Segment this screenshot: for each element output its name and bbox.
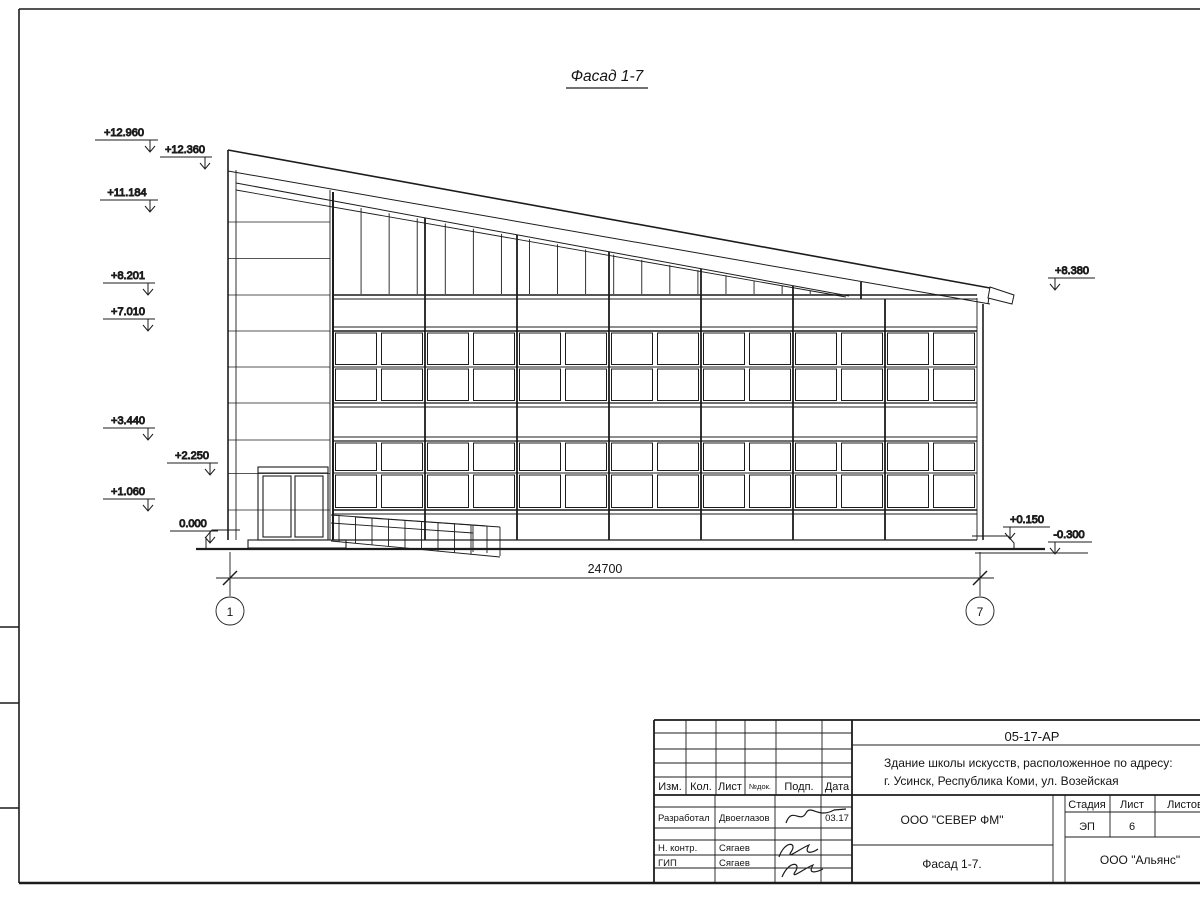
window-cell [750,369,791,401]
sheets-label: Листов [1167,799,1200,811]
window-cell [796,369,837,401]
window-cell [796,475,837,508]
window-cell [382,369,423,401]
window-cell [612,475,653,508]
entrance-door [248,467,346,548]
window-cell [566,475,607,508]
doc-number: 05-17-АР [1005,729,1060,744]
elevation-mark: +12.960 [95,127,158,152]
rev-header-izm: Изм. [658,781,682,793]
elevation-mark: +11.184 [100,187,158,212]
stage-value: ЭП [1079,821,1095,833]
elevation-mark: +3.440 [103,415,155,440]
svg-text:-0.300: -0.300 [1053,529,1084,541]
svg-text:0.000: 0.000 [179,518,207,530]
rev-header-podp: Подп. [784,781,813,793]
window-cell [382,333,423,365]
dimension-text: 24700 [588,562,623,576]
name-developed: Двоеглазов [719,813,770,824]
window-cell [382,475,423,508]
door-leaf [295,476,323,537]
svg-text:+1.060: +1.060 [111,486,145,498]
window-cell [796,443,837,471]
roof-soffit [236,183,849,297]
window-cell [612,369,653,401]
window-cell [842,369,883,401]
role-developed: Разработал [658,813,710,824]
name-ncontr: Сягаев [719,843,750,854]
elevation-mark: +0.150 [1003,514,1050,539]
window-cell [428,333,469,365]
window-cell [336,475,377,508]
window-cell [796,333,837,365]
drawing-sheet: Фасад 1-7 [0,0,1200,900]
door-leaf [263,476,291,537]
axis-label-7: 7 [977,605,984,619]
window-cell [520,443,561,471]
window-cell [934,443,975,471]
window-cell [520,333,561,365]
window-cell [750,443,791,471]
svg-text:+8.201: +8.201 [111,270,145,282]
major-mullions [425,218,885,540]
roof-end-cap [988,287,1014,304]
sheet-frame [0,9,1200,883]
window-cell [888,475,929,508]
elevation-mark: +2.250 [167,450,218,475]
svg-text:+3.440: +3.440 [111,415,145,427]
window-cell [520,475,561,508]
elevation-mark: +7.010 [103,306,155,331]
project-name-line1: Здание школы искусств, расположенное по … [884,756,1173,770]
role-gip: ГИП [658,858,677,869]
window-cell [520,369,561,401]
access-ramp [331,515,500,557]
window-cell [566,443,607,471]
dimension-and-axes: 24700 1 7 [216,552,994,625]
role-ncontr: Н. контр. [658,843,697,854]
window-cell [658,369,699,401]
view-title: Фасад 1-7 [566,68,648,88]
window-cell [658,475,699,508]
svg-text:+12.960: +12.960 [104,127,144,139]
window-cell [474,369,515,401]
rev-header-kol: Кол. [690,781,712,793]
window-cell [842,333,883,365]
window-cell [658,333,699,365]
svg-text:+0.150: +0.150 [1010,514,1044,526]
stage-label: Стадия [1068,799,1106,811]
org-name: ООО "Альянс" [1100,853,1180,867]
window-cell [658,443,699,471]
company-name: ООО "СЕВЕР ФМ" [901,813,1004,827]
window-cell [704,369,745,401]
window-cell [382,443,423,471]
signature [782,864,823,877]
window-cell [428,475,469,508]
left-tower [228,150,333,540]
elevation-marks: +12.960 +12.360 +11.184 +8.201 +7.010 +3… [95,127,1095,554]
rev-header-data: Дата [825,781,850,793]
rev-header-ndok: №док. [749,782,771,791]
elevation-mark: 0.000 [170,518,218,543]
elevation-mark: +8.380 [1048,265,1095,290]
axis-label-1: 1 [227,605,234,619]
window-cell [934,475,975,508]
elevation-mark: +1.060 [103,486,155,511]
window-cell [474,443,515,471]
svg-text:+12.360: +12.360 [165,144,205,156]
svg-text:+11.184: +11.184 [107,187,146,199]
svg-text:+8.380: +8.380 [1055,265,1089,277]
window-cell [566,369,607,401]
facade-transoms [333,295,977,540]
window-cell [428,443,469,471]
drawing-title-cell: Фасад 1-7. [922,857,981,871]
window-cell [888,333,929,365]
window-cell [566,333,607,365]
svg-text:+7.010: +7.010 [111,306,145,318]
window-cell [612,333,653,365]
window-cell [934,333,975,365]
glazing-grid [333,203,975,508]
window-cell [336,369,377,401]
window-cell [842,475,883,508]
rev-header-list: Лист [718,781,742,793]
window-cell [474,333,515,365]
elevation-mark: -0.300 [1048,529,1092,554]
window-cell [336,333,377,365]
window-cell [704,443,745,471]
title-block: 05-17-АР Здание школы искусств, располож… [654,720,1200,883]
date-developed: 03.17 [825,813,849,824]
window-cell [750,475,791,508]
window-cell [474,475,515,508]
window-cell [888,443,929,471]
window-cell [842,443,883,471]
right-wall [977,298,983,540]
window-cell [750,333,791,365]
sheet-label: Лист [1120,799,1144,811]
project-name-line2: г. Усинск, Республика Коми, ул. Возейска… [884,774,1119,788]
svg-text:+2.250: +2.250 [175,450,209,462]
roof-fascia [228,150,1014,304]
view-title-text: Фасад 1-7 [571,68,645,85]
elevation-mark: +8.201 [103,270,155,295]
window-cell [704,333,745,365]
window-cell [888,369,929,401]
elevation-mark: +12.360 [160,144,212,169]
window-cell [336,443,377,471]
window-cell [428,369,469,401]
name-gip: Сягаев [719,858,750,869]
window-cell [704,475,745,508]
sheet-value: 6 [1129,821,1135,833]
facade-drawing-canvas: Фасад 1-7 [0,0,1200,900]
window-cell [934,369,975,401]
window-cell [612,443,653,471]
building-elevation [196,150,1088,557]
